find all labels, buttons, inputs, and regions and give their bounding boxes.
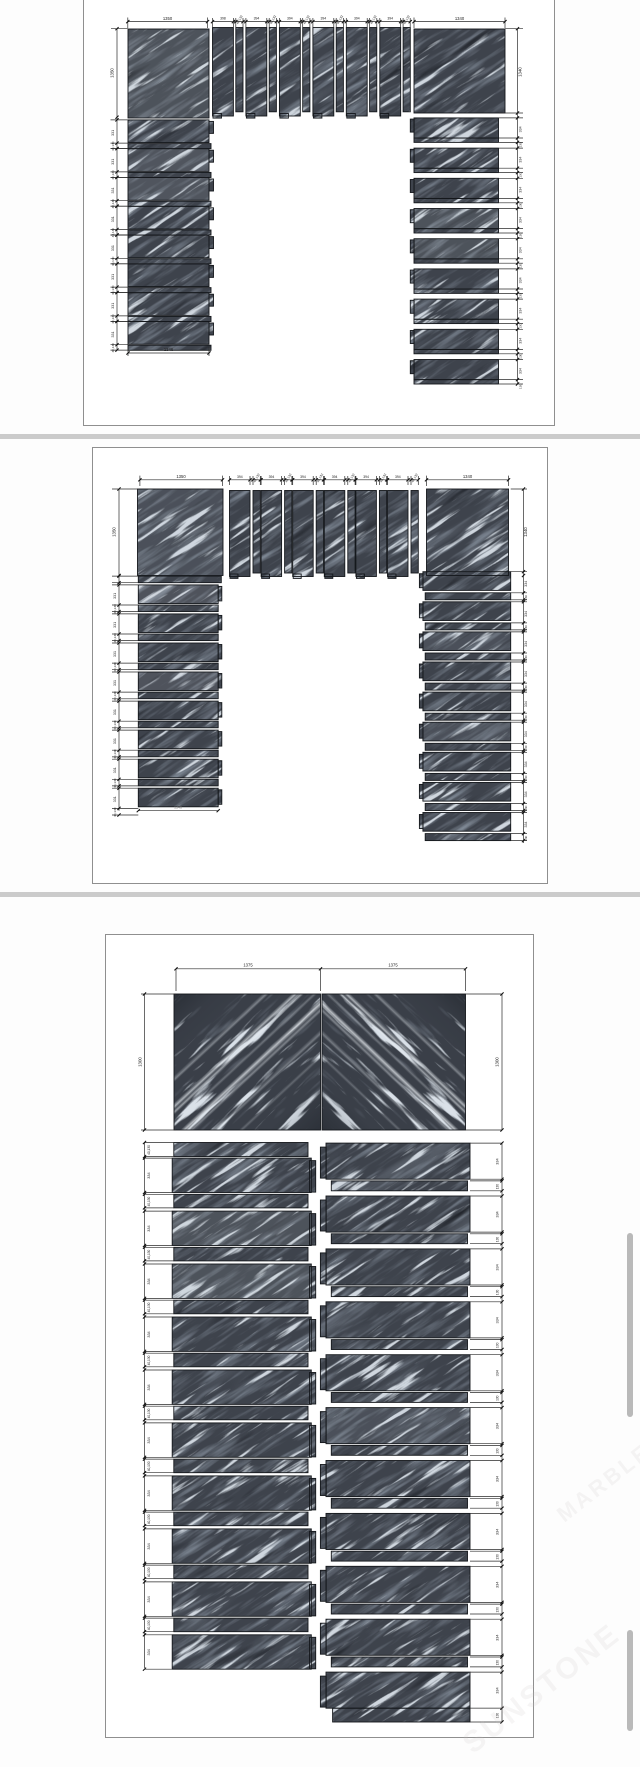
svg-text:334: 334 [518,187,522,193]
svg-text:40,130: 40,130 [113,807,117,817]
svg-text:334: 334 [147,1490,151,1496]
svg-text:334: 334 [147,1331,151,1337]
svg-text:331: 331 [113,680,117,686]
svg-text:40,130: 40,130 [111,141,115,151]
svg-text:130: 130 [496,1395,500,1401]
svg-text:40,130: 40,130 [111,256,115,266]
svg-text:331: 331 [111,159,115,165]
svg-text:394: 394 [354,17,360,21]
svg-text:130: 130 [524,625,528,630]
svg-text:334: 334 [518,368,522,374]
svg-text:334: 334 [147,1278,151,1284]
svg-text:40,132: 40,132 [369,14,377,25]
svg-text:334: 334 [518,217,522,223]
svg-text:1350: 1350 [112,527,117,537]
svg-text:334: 334 [496,1582,500,1588]
svg-text:130: 130 [496,1607,500,1613]
svg-text:334: 334 [524,791,528,797]
svg-text:331: 331 [113,709,117,715]
svg-text:334: 334 [147,1596,151,1602]
svg-text:331: 331 [113,796,117,802]
svg-text:331: 331 [111,332,115,338]
svg-text:1350: 1350 [176,474,186,479]
svg-text:40,130: 40,130 [113,691,117,701]
svg-text:334: 334 [496,1317,500,1323]
svg-text:40,130: 40,130 [113,604,117,614]
svg-text:394: 394 [254,17,260,21]
svg-text:394: 394 [363,475,369,479]
svg-text:40,132: 40,132 [235,14,243,25]
svg-text:334: 334 [524,641,528,647]
svg-text:334: 334 [496,1476,500,1482]
svg-text:334: 334 [518,157,522,163]
svg-text:394: 394 [300,475,306,479]
svg-text:130: 130 [496,1448,500,1454]
svg-text:1375: 1375 [388,962,398,967]
svg-text:40,130: 40,130 [113,720,117,730]
svg-text:394: 394 [320,17,326,21]
svg-text:40,130: 40,130 [147,1355,151,1365]
svg-text:334: 334 [496,1370,500,1376]
svg-text:334: 334 [524,761,528,767]
svg-text:40,132: 40,132 [411,472,419,483]
svg-text:394: 394 [395,475,401,479]
svg-text:1340: 1340 [523,527,528,537]
svg-text:40,132: 40,132 [269,14,277,25]
svg-text:334: 334 [496,1635,500,1641]
svg-text:334: 334 [518,247,522,253]
svg-text:334: 334 [496,1158,500,1164]
svg-text:130: 130 [524,655,528,660]
svg-text:331: 331 [111,245,115,251]
svg-text:394: 394 [387,17,393,21]
svg-text:331: 331 [111,274,115,280]
svg-text:334: 334 [524,611,528,617]
svg-text:130: 130 [524,835,528,840]
svg-text:334: 334 [496,1423,500,1429]
svg-text:130: 130 [496,1184,500,1190]
svg-text:1340: 1340 [463,474,473,479]
svg-text:40,130: 40,130 [147,1196,151,1206]
svg-text:1340: 1340 [455,16,465,21]
svg-text:394: 394 [332,475,338,479]
svg-text:1300: 1300 [138,1057,143,1067]
svg-text:130: 130 [518,384,522,389]
svg-text:1375: 1375 [243,962,253,967]
svg-text:331: 331 [111,303,115,309]
svg-text:331: 331 [113,622,117,628]
svg-text:40,130: 40,130 [147,1514,151,1524]
svg-text:334: 334 [147,1649,151,1655]
svg-text:130: 130 [524,595,528,600]
svg-text:40,130: 40,130 [113,778,117,788]
svg-text:1340: 1340 [517,67,522,77]
svg-text:40,130: 40,130 [111,314,115,324]
svg-text:331: 331 [111,130,115,136]
svg-text:334: 334 [518,277,522,283]
svg-text:130: 130 [524,685,528,690]
svg-text:334: 334 [524,731,528,737]
svg-text:334: 334 [147,1172,151,1178]
svg-text:331: 331 [111,216,115,222]
svg-text:130: 130 [524,715,528,720]
svg-text:40,130: 40,130 [111,343,115,353]
svg-text:40,130: 40,130 [147,1145,151,1155]
svg-text:130: 130 [496,1554,500,1560]
svg-text:1350: 1350 [163,16,173,21]
svg-text:334: 334 [147,1384,151,1390]
svg-text:334: 334 [147,1437,151,1443]
svg-text:130: 130 [496,1501,500,1507]
svg-text:40,130: 40,130 [147,1249,151,1259]
svg-text:1350: 1350 [110,68,115,78]
svg-text:331: 331 [113,767,117,773]
svg-text:334: 334 [518,126,522,132]
svg-text:40,130: 40,130 [111,199,115,209]
svg-text:40,130: 40,130 [113,749,117,759]
svg-text:398: 398 [220,17,226,21]
svg-text:40,132: 40,132 [336,14,344,25]
svg-text:394: 394 [269,475,275,479]
svg-text:331: 331 [113,651,117,657]
svg-text:394: 394 [287,17,293,21]
svg-text:331: 331 [111,188,115,194]
svg-text:334: 334 [524,822,528,828]
svg-text:334: 334 [524,671,528,677]
svg-text:334: 334 [496,1211,500,1217]
svg-text:130: 130 [524,745,528,750]
svg-text:331: 331 [113,738,117,744]
svg-text:130: 130 [496,1342,500,1348]
svg-text:334: 334 [496,1687,500,1693]
svg-text:1346: 1346 [164,347,174,352]
svg-text:1300: 1300 [495,1057,500,1067]
svg-text:40,130: 40,130 [147,1302,151,1312]
svg-text:334: 334 [524,581,528,587]
svg-text:130: 130 [524,805,528,810]
svg-text:1346: 1346 [174,806,182,810]
svg-text:334: 334 [518,338,522,344]
svg-text:40,132: 40,132 [403,14,411,25]
svg-text:40,130: 40,130 [147,1620,151,1630]
svg-text:334: 334 [524,701,528,707]
svg-text:40,130: 40,130 [147,1408,151,1418]
svg-text:40,132: 40,132 [302,14,310,25]
svg-text:40,130: 40,130 [111,228,115,238]
svg-text:334: 334 [147,1225,151,1231]
svg-text:40,130: 40,130 [113,633,117,643]
svg-text:130: 130 [496,1290,500,1296]
svg-text:334: 334 [518,308,522,314]
svg-text:334: 334 [496,1264,500,1270]
svg-text:130: 130 [496,1237,500,1243]
svg-text:334: 334 [147,1543,151,1549]
svg-text:40,130: 40,130 [111,285,115,295]
svg-text:40,130: 40,130 [147,1461,151,1471]
svg-text:40,130: 40,130 [147,1567,151,1577]
svg-text:394: 394 [237,475,243,479]
svg-text:130: 130 [496,1660,500,1666]
svg-text:331: 331 [113,593,117,599]
svg-text:40,130: 40,130 [111,170,115,180]
svg-text:334: 334 [496,1529,500,1535]
svg-text:130: 130 [524,775,528,780]
svg-text:40,130: 40,130 [113,662,117,672]
